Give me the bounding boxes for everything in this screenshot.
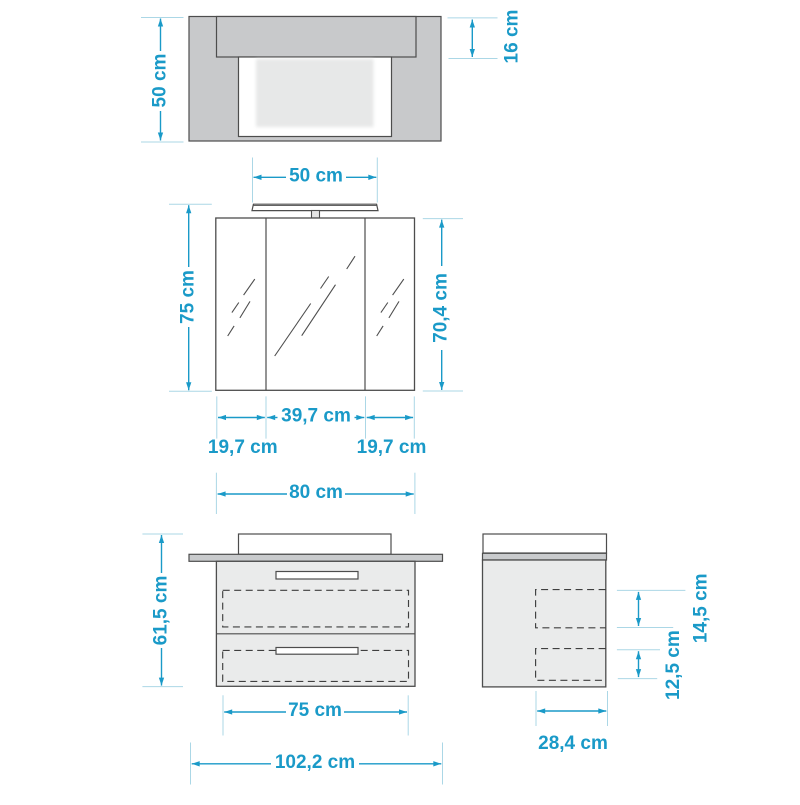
svg-text:39,7 cm: 39,7 cm: [281, 406, 351, 427]
svg-text:19,7 cm: 19,7 cm: [208, 437, 278, 458]
svg-text:16 cm: 16 cm: [502, 10, 523, 64]
svg-text:50 cm: 50 cm: [289, 165, 343, 186]
svg-text:12,5 cm: 12,5 cm: [663, 630, 684, 700]
svg-text:61,5 cm: 61,5 cm: [151, 576, 172, 646]
svg-text:19,7 cm: 19,7 cm: [357, 437, 427, 458]
svg-text:14,5 cm: 14,5 cm: [690, 573, 711, 643]
svg-text:28,4 cm: 28,4 cm: [538, 733, 608, 754]
svg-text:80 cm: 80 cm: [289, 482, 343, 503]
svg-text:50 cm: 50 cm: [150, 54, 171, 108]
svg-text:75 cm: 75 cm: [178, 270, 199, 324]
svg-text:75 cm: 75 cm: [288, 700, 342, 721]
svg-text:102,2 cm: 102,2 cm: [275, 752, 355, 773]
svg-text:70,4 cm: 70,4 cm: [431, 273, 452, 343]
